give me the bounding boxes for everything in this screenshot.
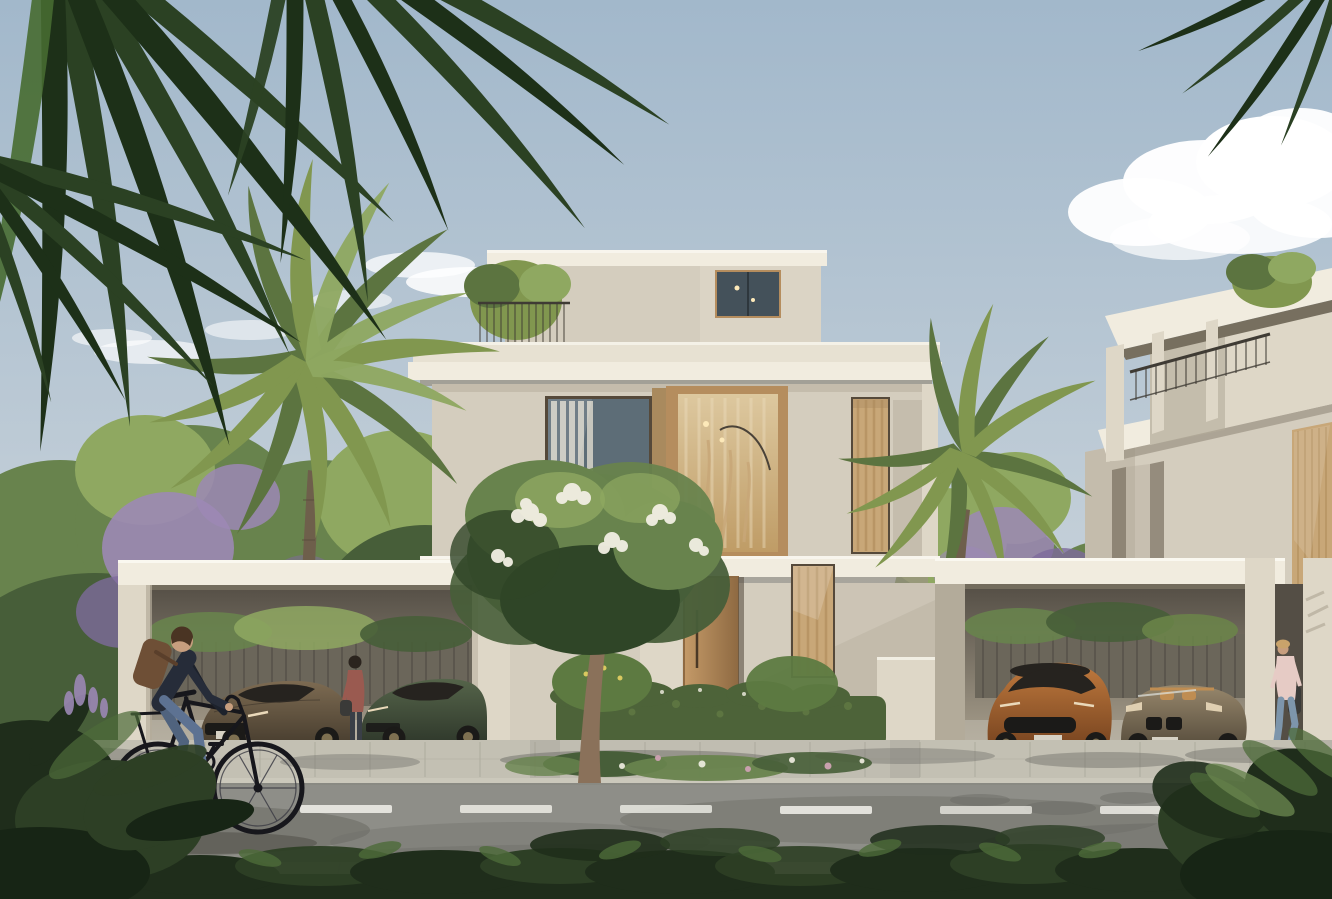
fascia-band	[408, 362, 942, 380]
right-villa-corner-column	[1106, 344, 1124, 462]
window-right	[852, 398, 889, 553]
round-bush-right	[746, 656, 838, 712]
carport-roof	[935, 558, 1285, 584]
architectural-rendering	[0, 0, 1332, 899]
render-canvas	[0, 0, 1332, 899]
villa-corner-pier	[1303, 558, 1332, 750]
carport-pier-right	[1245, 558, 1275, 750]
parapet	[413, 342, 940, 364]
